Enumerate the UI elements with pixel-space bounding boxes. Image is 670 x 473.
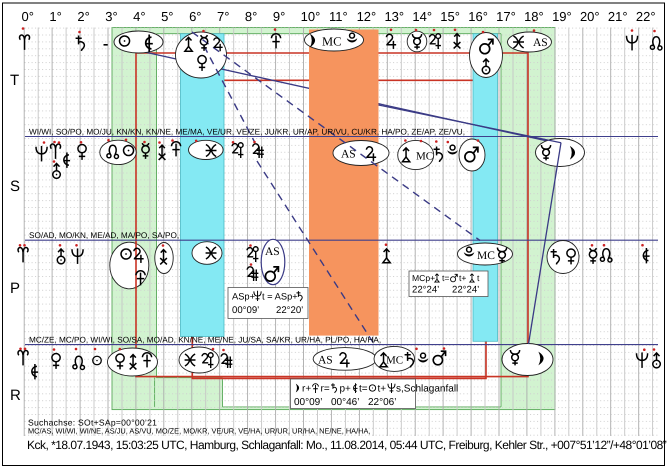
svg-text:3°: 3° xyxy=(105,9,117,24)
svg-text:13°: 13° xyxy=(384,9,404,24)
svg-text:22°24’: 22°24’ xyxy=(452,285,479,296)
svg-text:5°: 5° xyxy=(161,9,173,24)
svg-text:8°: 8° xyxy=(245,9,257,24)
svg-text:R: R xyxy=(10,387,21,404)
svg-text:s,Schlaganfall: s,Schlaganfall xyxy=(396,384,458,395)
svg-text:18°: 18° xyxy=(524,9,544,24)
svg-text:t = ASp+: t = ASp+ xyxy=(262,292,298,302)
svg-text:9°: 9° xyxy=(273,9,285,24)
svg-text:Kck, *18.07.1943, 15:03:25 UTC: Kck, *18.07.1943, 15:03:25 UTC, Hamburg,… xyxy=(27,438,667,452)
svg-text:22°: 22° xyxy=(636,9,656,24)
svg-text:00°09’: 00°09’ xyxy=(294,397,322,408)
svg-text:t=: t= xyxy=(442,273,449,283)
svg-text:MC/AS, WI/WI, WI/NE, AS/JU, AS: MC/AS, WI/WI, WI/NE, AS/JU, AS/VU, MO/ZE… xyxy=(28,427,370,436)
svg-text:ASp+: ASp+ xyxy=(232,292,255,302)
svg-text:MCp+: MCp+ xyxy=(412,273,435,283)
svg-text:AS: AS xyxy=(265,246,280,258)
svg-text:AS: AS xyxy=(533,37,548,49)
svg-text:r=: r= xyxy=(321,384,330,395)
svg-text:22°20’: 22°20’ xyxy=(276,305,303,316)
svg-text:AS: AS xyxy=(341,149,356,161)
svg-text:15°: 15° xyxy=(440,9,460,24)
svg-text:19°: 19° xyxy=(552,9,572,24)
svg-text:SO/AD, MO/KN, ME/AD, MA/PO, SA: SO/AD, MO/KN, ME/AD, MA/PO, SA/PO, xyxy=(29,231,179,240)
svg-text:MC: MC xyxy=(322,35,341,49)
svg-text:p+: p+ xyxy=(340,384,352,395)
svg-text:7°: 7° xyxy=(217,9,229,24)
svg-text:r+: r+ xyxy=(302,384,311,395)
svg-text:11°: 11° xyxy=(329,9,348,24)
svg-text:AS: AS xyxy=(318,355,333,367)
svg-text:10°: 10° xyxy=(301,9,321,24)
svg-text:00°09’: 00°09’ xyxy=(232,305,259,316)
svg-text:0°: 0° xyxy=(21,9,33,24)
svg-text:MC: MC xyxy=(386,355,403,367)
svg-text:t+: t+ xyxy=(378,384,387,395)
svg-text:T: T xyxy=(10,72,19,89)
svg-text:12°: 12° xyxy=(357,9,377,24)
svg-text:22°24’: 22°24’ xyxy=(412,285,439,296)
svg-text:S: S xyxy=(10,178,20,195)
svg-text:t+: t+ xyxy=(459,273,466,283)
svg-text:16°: 16° xyxy=(468,9,488,24)
svg-text:MC: MC xyxy=(416,151,433,163)
svg-text:4°: 4° xyxy=(133,9,145,24)
svg-text:21°: 21° xyxy=(608,9,628,24)
svg-text:MC/ZE, MC/PO, WI/WI, SO/SA, MO: MC/ZE, MC/PO, WI/WI, SO/SA, MO/AD, KN/NE… xyxy=(29,336,381,345)
svg-text:20°: 20° xyxy=(580,9,600,24)
svg-text:14°: 14° xyxy=(412,9,432,24)
svg-text:22°06’: 22°06’ xyxy=(368,397,396,408)
svg-text:17°: 17° xyxy=(496,9,516,24)
svg-text:6°: 6° xyxy=(189,9,201,24)
svg-text:P: P xyxy=(10,280,20,297)
svg-text:00°46’: 00°46’ xyxy=(331,397,359,408)
svg-text:MC: MC xyxy=(477,250,495,262)
svg-text:2°: 2° xyxy=(77,9,89,24)
svg-text:WI/WI, SO/PO, MO/JU, KN/KN, KN: WI/WI, SO/PO, MO/JU, KN/KN, KN/NE, ME/MA… xyxy=(29,128,465,137)
svg-text:t=: t= xyxy=(359,384,368,395)
svg-text:1°: 1° xyxy=(49,9,61,24)
